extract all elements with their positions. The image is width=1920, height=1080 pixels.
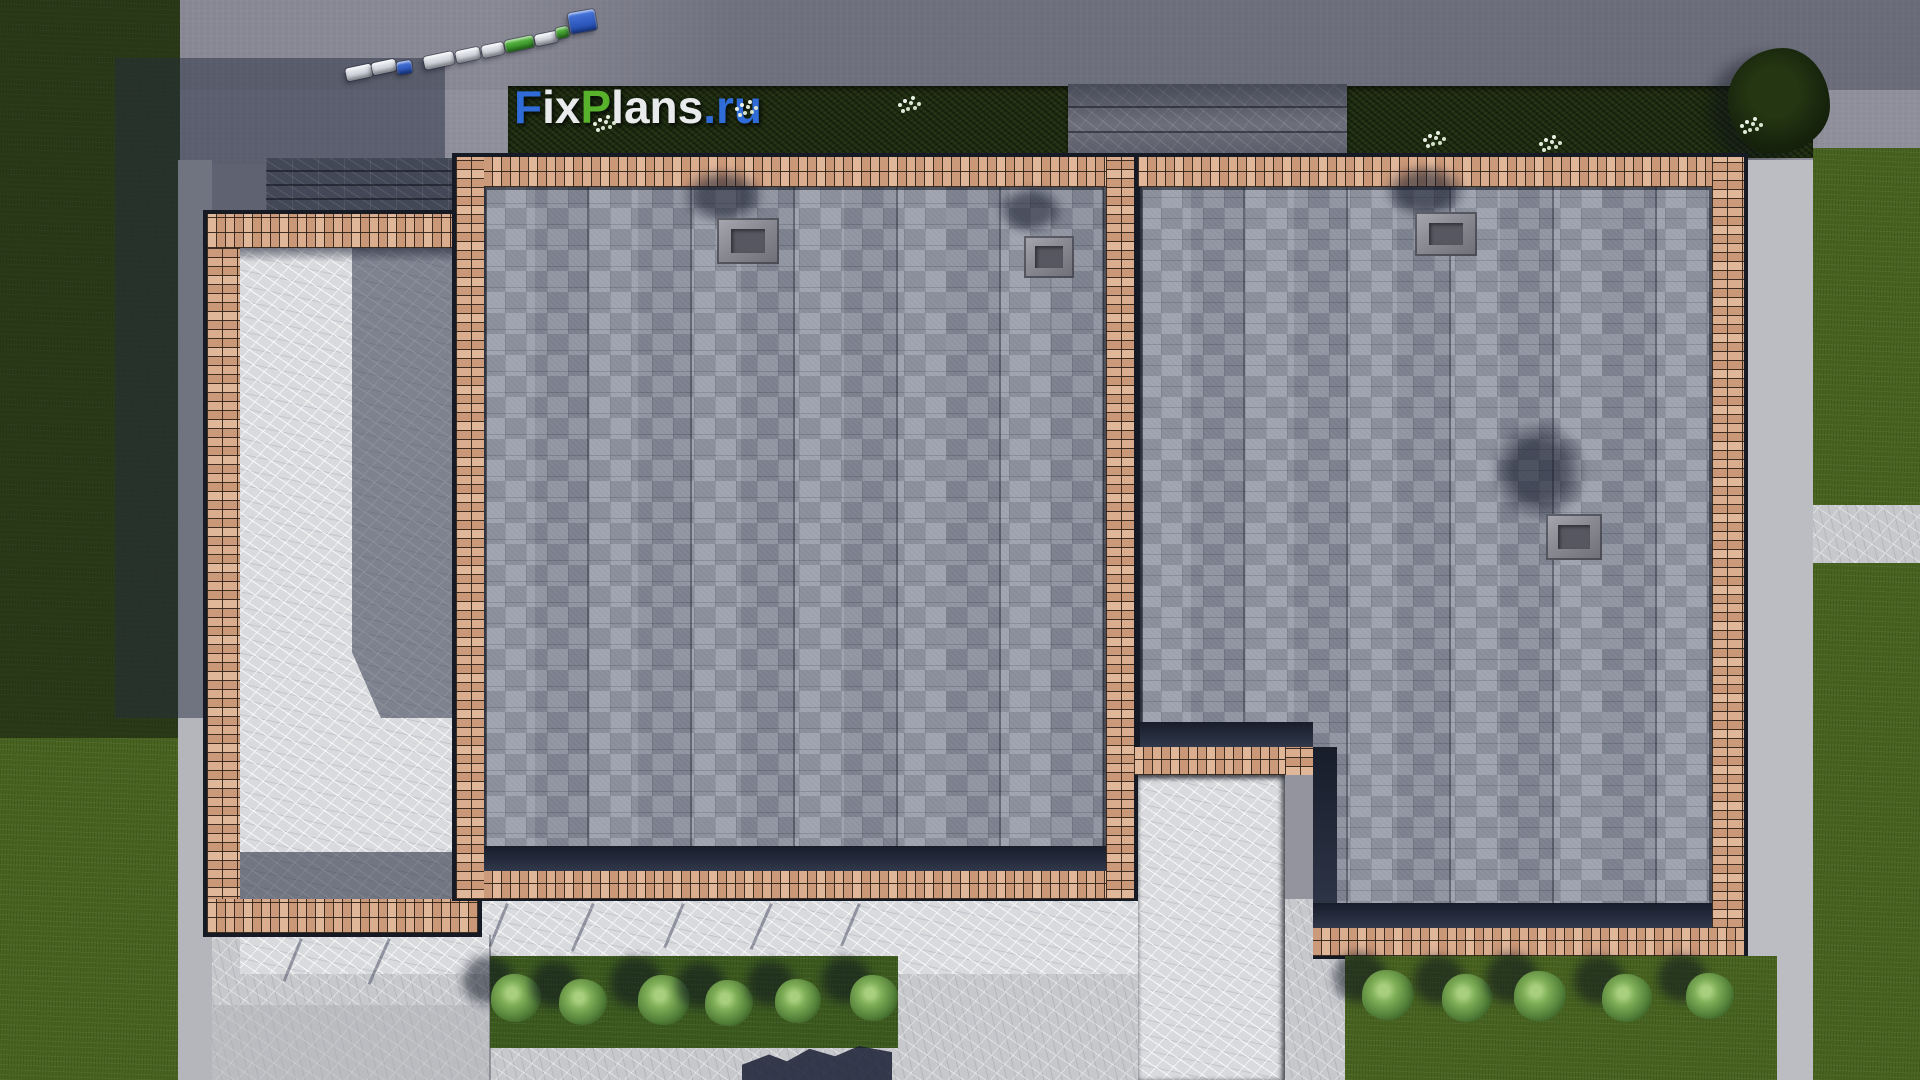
building-right-brick-right bbox=[1712, 157, 1744, 955]
chimney-shadow bbox=[1384, 164, 1466, 218]
chimney-shadow bbox=[1492, 422, 1586, 520]
flower-cluster bbox=[1544, 138, 1548, 142]
chimney bbox=[1415, 212, 1477, 256]
watermark-logo: FixPlans.ru bbox=[514, 84, 762, 130]
building-right-gutter-bottom bbox=[1313, 903, 1712, 928]
logo-text-part: lans bbox=[611, 81, 703, 133]
flower-cluster bbox=[740, 103, 744, 107]
building-mid-brick-right bbox=[1106, 157, 1134, 899]
bush bbox=[1514, 971, 1566, 1021]
courtyard-bottom-shadow bbox=[240, 852, 455, 899]
bush bbox=[705, 980, 753, 1026]
site-plan-render: FixPlans.ru bbox=[0, 0, 1920, 1080]
bush bbox=[1602, 974, 1652, 1022]
bush bbox=[638, 975, 690, 1025]
walkway-right-lower bbox=[1777, 956, 1813, 1080]
chimney bbox=[717, 218, 779, 264]
bush bbox=[1442, 974, 1492, 1022]
path-right-horizontal bbox=[1813, 505, 1920, 563]
bed-front bbox=[490, 956, 898, 1048]
flower-cluster bbox=[1745, 120, 1749, 124]
building-mid-brick-top bbox=[456, 157, 1134, 187]
building-mid-roof bbox=[484, 187, 1106, 855]
chimney bbox=[1546, 514, 1602, 560]
bush bbox=[559, 979, 607, 1025]
bush bbox=[491, 974, 541, 1022]
courtyard-floor-shadow bbox=[352, 248, 455, 718]
bush bbox=[1362, 970, 1414, 1020]
building-mid-brick-bottom bbox=[456, 871, 1134, 899]
building-mid-gutter bbox=[484, 846, 1106, 872]
courtyard-brick-wall-bottom bbox=[207, 899, 478, 933]
building-right-gutter-notch-top bbox=[1140, 722, 1313, 747]
patio-notch bbox=[1138, 775, 1285, 1080]
walkway-right bbox=[1745, 160, 1813, 956]
bush bbox=[1686, 973, 1734, 1019]
flower-cluster bbox=[1428, 134, 1432, 138]
parked-car bbox=[396, 60, 413, 75]
chimney-shadow bbox=[997, 186, 1063, 234]
entry-steps bbox=[1068, 84, 1347, 158]
logo-text-part: F bbox=[514, 81, 542, 133]
logo-text-part: .ru bbox=[703, 81, 762, 133]
courtyard-brick-wall-left bbox=[207, 214, 240, 933]
flower-cluster bbox=[598, 118, 602, 122]
chimney bbox=[1024, 236, 1074, 278]
building-right-brick-bottom bbox=[1285, 928, 1744, 956]
logo-text-part: P bbox=[580, 81, 611, 133]
building-mid-brick-left bbox=[456, 157, 484, 899]
flower-cluster bbox=[903, 99, 907, 103]
logo-text-part: ix bbox=[542, 81, 580, 133]
path-dim-block bbox=[212, 1005, 490, 1080]
tree-top-right bbox=[1728, 48, 1830, 154]
retaining-wall-shadowed bbox=[266, 158, 458, 214]
courtyard-top-shadow bbox=[240, 248, 455, 262]
bush bbox=[850, 975, 898, 1021]
chimney-shadow bbox=[682, 168, 764, 224]
courtyard-brick-wall-top bbox=[207, 214, 478, 248]
lawn-right bbox=[1813, 148, 1920, 1080]
